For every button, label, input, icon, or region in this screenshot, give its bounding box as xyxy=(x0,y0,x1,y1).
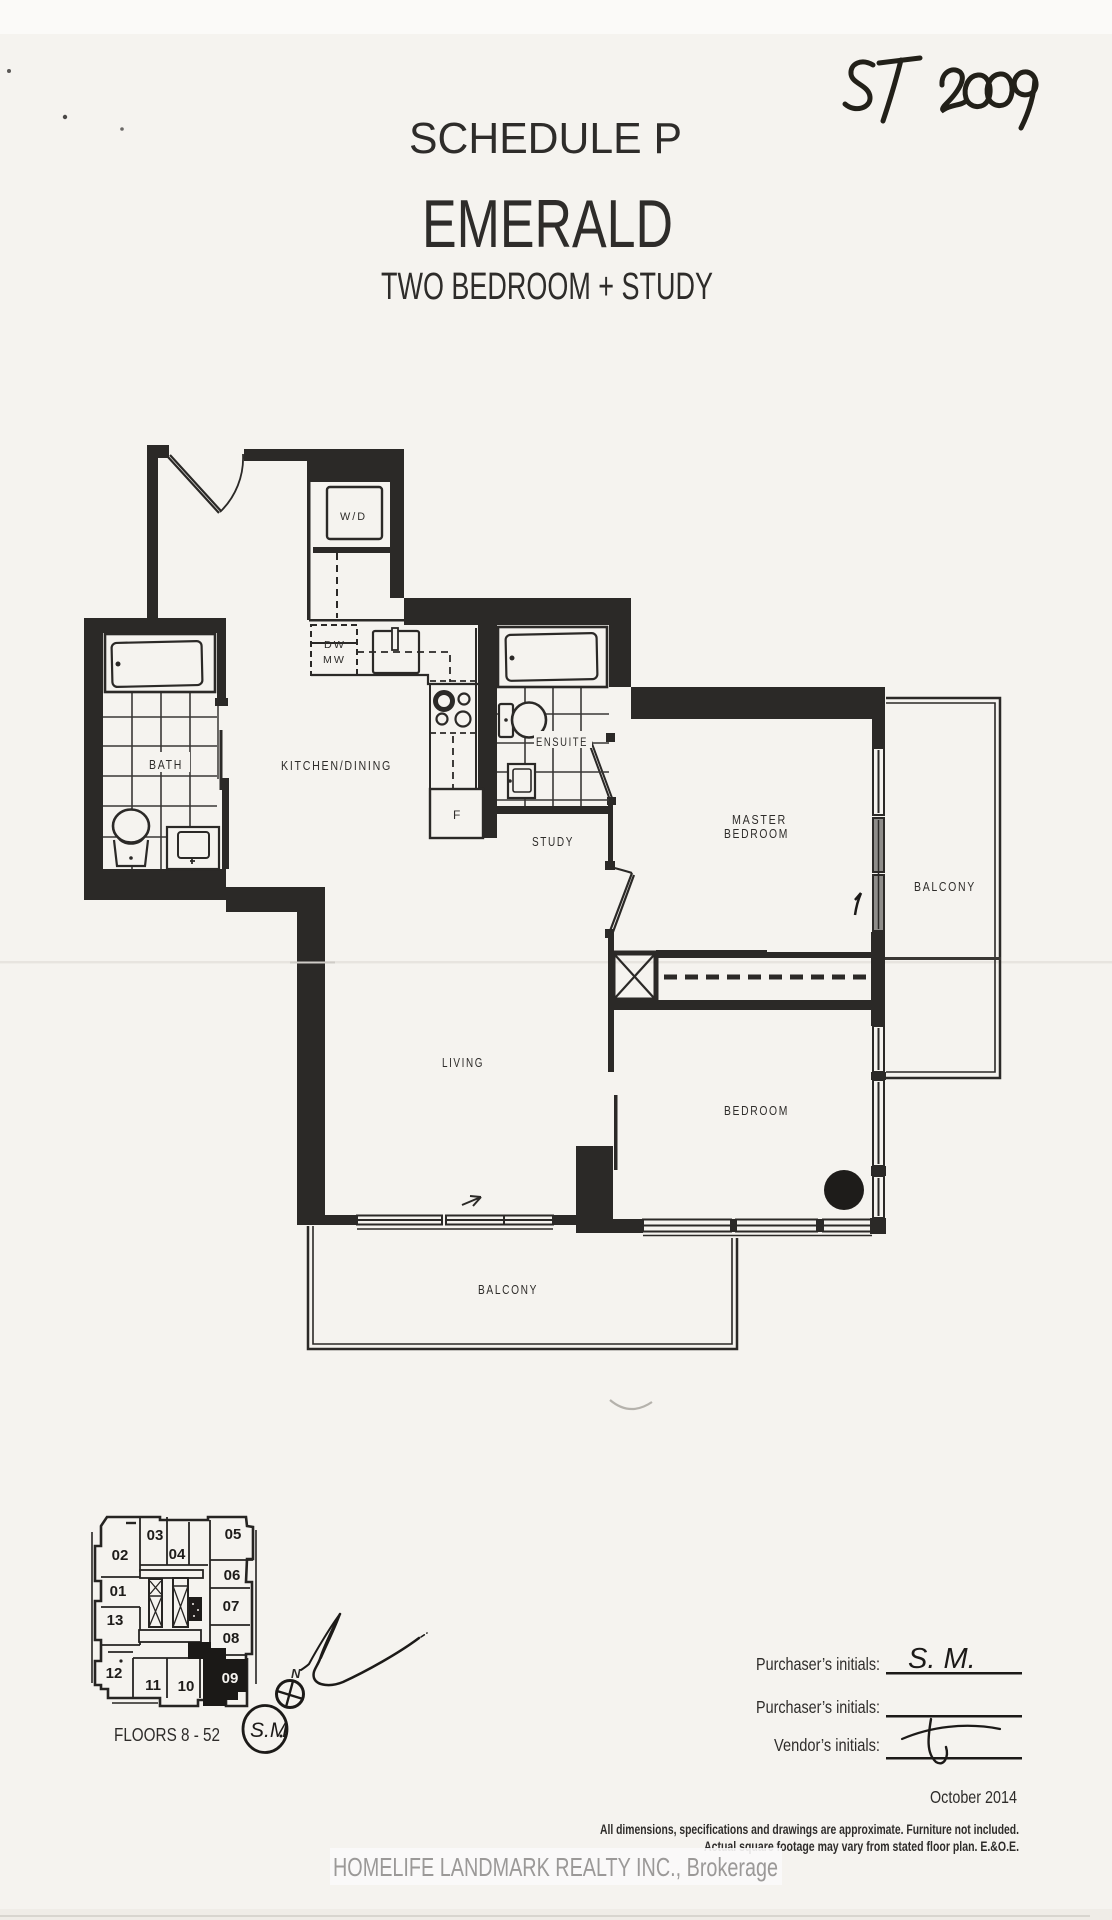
svg-text:BEDROOM: BEDROOM xyxy=(724,1104,789,1118)
svg-text:W/D: W/D xyxy=(340,511,367,523)
svg-text:October 2014: October 2014 xyxy=(930,1787,1017,1807)
svg-text:BATH: BATH xyxy=(149,758,183,772)
svg-text:SCHEDULE P: SCHEDULE P xyxy=(409,114,682,163)
svg-text:FLOORS 8 - 52: FLOORS 8 - 52 xyxy=(114,1724,220,1745)
svg-text:Purchaser’s initials:: Purchaser’s initials: xyxy=(756,1697,880,1717)
svg-text:F: F xyxy=(453,808,460,822)
svg-text:07: 07 xyxy=(223,1598,240,1615)
svg-text:11: 11 xyxy=(145,1677,161,1694)
svg-text:02: 02 xyxy=(112,1547,129,1564)
svg-text:KITCHEN/DINING: KITCHEN/DINING xyxy=(281,759,392,773)
svg-text:LIVING: LIVING xyxy=(442,1056,484,1070)
svg-text:S.M: S.M xyxy=(250,1719,288,1742)
svg-text:N: N xyxy=(291,1666,301,1681)
svg-text:DW: DW xyxy=(324,639,346,651)
svg-text:MASTER: MASTER xyxy=(732,813,787,827)
svg-text:MW: MW xyxy=(323,654,346,666)
svg-text:04: 04 xyxy=(169,1546,186,1563)
svg-text:10: 10 xyxy=(178,1678,195,1695)
svg-text:BALCONY: BALCONY xyxy=(914,880,976,894)
svg-text:ENSUITE: ENSUITE xyxy=(536,735,588,749)
svg-text:06: 06 xyxy=(224,1567,241,1584)
svg-text:Purchaser’s initials:: Purchaser’s initials: xyxy=(756,1654,880,1674)
svg-text:BEDROOM: BEDROOM xyxy=(724,827,789,841)
svg-text:Vendor’s initials:: Vendor’s initials: xyxy=(774,1735,880,1755)
svg-text:09: 09 xyxy=(222,1670,239,1687)
svg-text:05: 05 xyxy=(225,1526,242,1543)
svg-text:01: 01 xyxy=(110,1583,127,1600)
svg-text:12: 12 xyxy=(106,1665,123,1682)
svg-text:03: 03 xyxy=(147,1527,164,1544)
svg-text:13: 13 xyxy=(107,1612,124,1629)
svg-text:08: 08 xyxy=(223,1630,240,1647)
svg-text:STUDY: STUDY xyxy=(532,835,574,849)
svg-text:TWO BEDROOM + STUDY: TWO BEDROOM + STUDY xyxy=(381,266,713,308)
svg-text:HOMELIFE LANDMARK REALTY INC.,: HOMELIFE LANDMARK REALTY INC., Brokerage xyxy=(333,1852,778,1882)
svg-text:S. M.: S. M. xyxy=(908,1643,976,1675)
svg-text:EMERALD: EMERALD xyxy=(422,186,673,262)
svg-text:BALCONY: BALCONY xyxy=(478,1283,538,1297)
svg-text:All dimensions, specifications: All dimensions, specifications and drawi… xyxy=(600,1821,1019,1837)
